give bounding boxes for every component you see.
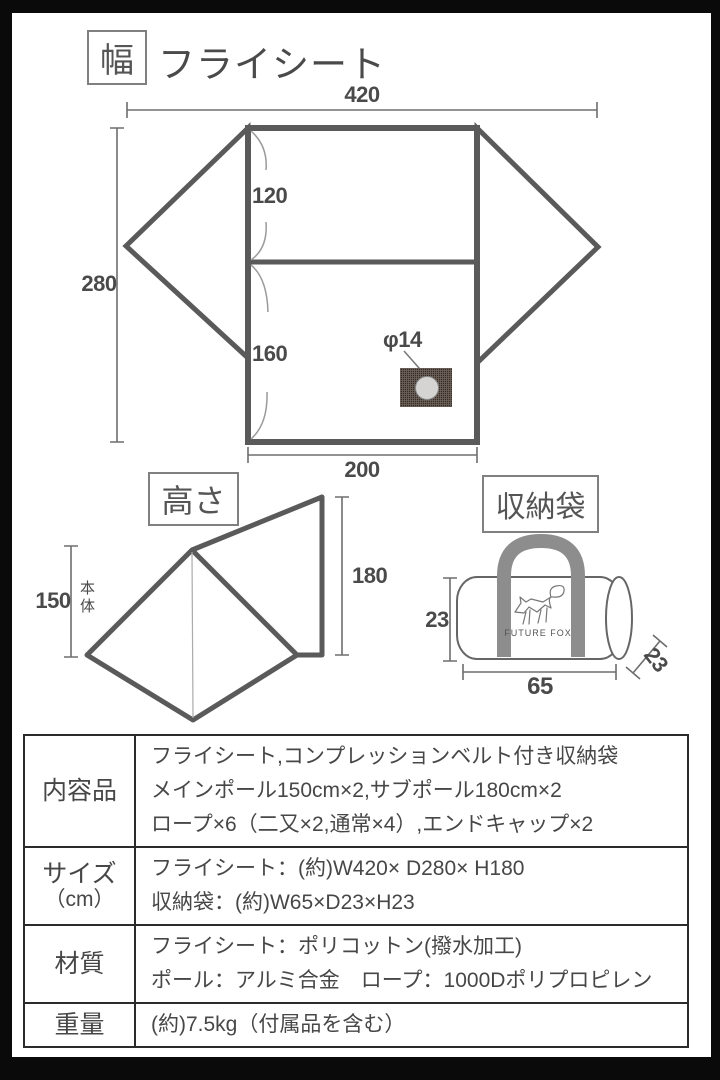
table-row-weight: 重量 (約)7.5kg（付属品を含む）: [24, 1003, 688, 1047]
row-label-contents: 内容品: [24, 735, 135, 847]
frame-left: [0, 0, 12, 1080]
page-title: フライシート: [158, 34, 386, 88]
row-value-material: フライシート：ポリコットン(撥水加工) ポール：アルミ合金 ロープ：1000Dポ…: [135, 925, 688, 1003]
frame-top: [0, 0, 720, 13]
dim-lower-panel: 160: [252, 341, 287, 367]
dim-body-height: 150: [35, 588, 70, 614]
height-tag-box: 高さ: [148, 472, 239, 526]
row-label-material: 材質: [24, 925, 135, 1003]
row-value-contents: フライシート,コンプレッションベルト付き収納袋 メインポール150cm×2,サブ…: [135, 735, 688, 847]
flysheet-right-wing: [477, 128, 598, 363]
dim-width-total: 420: [344, 82, 379, 108]
bag-tag-box: 収納袋: [482, 475, 599, 533]
flysheet-left-wing: [126, 128, 248, 358]
body-note-label: 本体: [76, 580, 97, 616]
frame-bottom: [0, 1057, 720, 1080]
brand-logo-text: FUTURE FOX: [504, 628, 572, 638]
spec-table: 内容品 フライシート,コンプレッションベルト付き収納袋 メインポール150cm×…: [23, 734, 689, 1048]
dim-bag-width: 65: [527, 673, 553, 701]
tent-side-view: [87, 497, 322, 720]
vent-diameter-label: φ14: [383, 327, 422, 353]
width-tag-box: 幅: [87, 30, 147, 85]
dim-tent-height: 180: [352, 563, 387, 589]
table-row-material: 材質 フライシート：ポリコットン(撥水加工) ポール：アルミ合金 ロープ：100…: [24, 925, 688, 1003]
table-row-contents: 内容品 フライシート,コンプレッションベルト付き収納袋 メインポール150cm×…: [24, 735, 688, 847]
bag-body: [457, 577, 632, 659]
dim-bag-height: 23: [425, 607, 448, 633]
spec-sheet-page: 幅 フライシート 高さ 収納袋 420 280 120 160 200 φ14 …: [0, 0, 720, 1080]
width-tag-label: 幅: [100, 33, 134, 82]
row-label-size: サイズ （cm）: [24, 847, 135, 925]
bag-tag-label: 収納袋: [496, 482, 586, 526]
row-value-weight: (約)7.5kg（付属品を含む）: [135, 1003, 688, 1047]
table-row-size: サイズ （cm） フライシート：(約)W420× D280× H180 収納袋：…: [24, 847, 688, 925]
row-label-weight: 重量: [24, 1003, 135, 1047]
dim-depth-total: 280: [81, 271, 116, 297]
dim-bottom-width: 200: [344, 457, 379, 483]
dim-upper-panel: 120: [252, 183, 287, 209]
row-value-size: フライシート：(約)W420× D280× H180 収納袋：(約)W65×D2…: [135, 847, 688, 925]
height-tag-label: 高さ: [161, 476, 225, 522]
frame-right: [711, 0, 720, 1080]
